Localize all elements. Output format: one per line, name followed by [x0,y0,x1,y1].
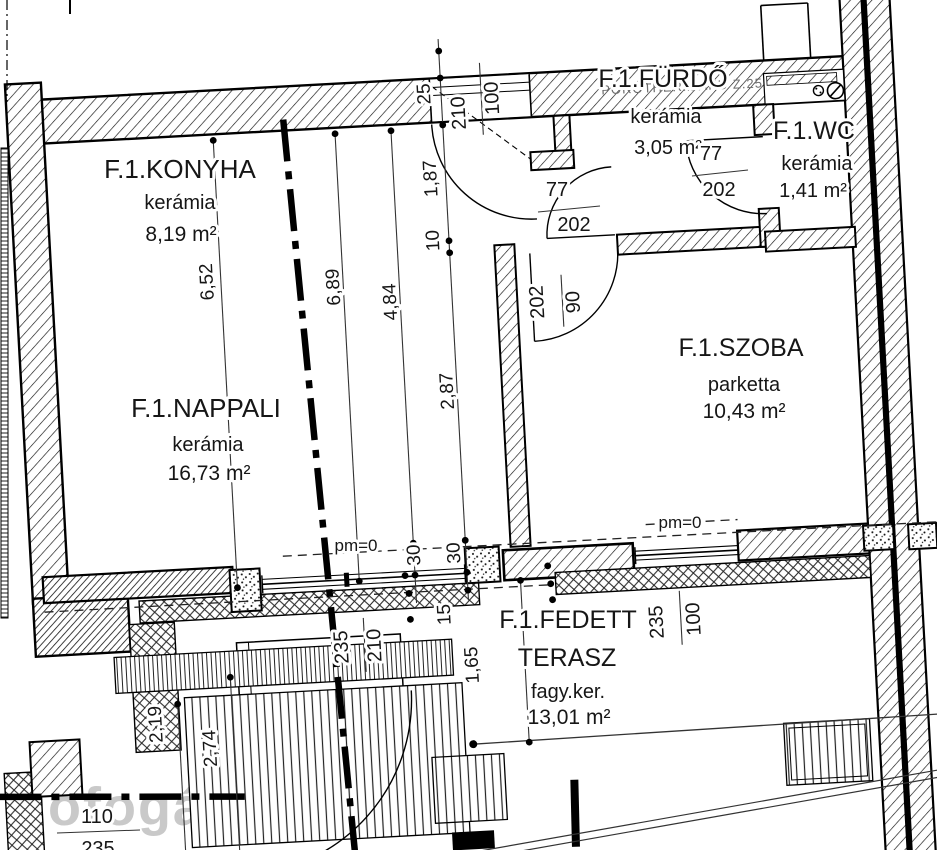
szoba-door-height: 202 [526,285,550,320]
north-wall-step-lines [761,3,811,61]
nappali-window-b: 210 [363,628,387,663]
szoba-door-width: 90 [562,290,585,313]
entry-width: 100 [480,81,504,116]
wc-vent-niche [763,69,845,104]
wc-door-height: 202 [702,179,735,201]
wall-furdo-stub [530,150,574,170]
wall-wc-south [765,227,856,252]
terrace-door-height: 235 [81,838,114,850]
wall-szoba-south [737,524,869,561]
furdo-area: 3,05 m² [634,137,702,159]
furdo-name: F.1.FÜRDŐ [598,64,727,93]
nappali-window-a: 235 [330,630,354,665]
floorplan-page: Jófogás [0,0,937,850]
dim-6-52: 6,52 [196,263,219,301]
dim-2-87: 2,87 [436,372,459,410]
entry-height: 210 [447,96,471,131]
dim-6-89: 6,89 [322,268,345,306]
wc-door-width: 77 [700,143,722,165]
terasz-area: 13,01 m² [528,706,611,729]
szoba-window-b: 100 [682,602,706,637]
dim-1-87: 1,87 [420,160,443,198]
wall-west [5,83,69,604]
dim-2-19: 2,19 [145,705,168,743]
konyha-area: 8,19 m² [145,223,216,246]
dim-30a: 30 [403,544,425,566]
wc-name: F.1.WC [773,117,855,145]
dim-30b: 30 [443,542,465,564]
terasz-name-line2: TERASZ [518,644,617,672]
furdo-door-height: 202 [557,214,590,236]
level-mark-nappali: pm=0 [335,536,378,555]
dim-25: 25 [413,83,435,105]
wc-area: 1,41 m² [779,180,847,202]
wall-furdo-south [617,227,766,255]
dim-4-84: 4,84 [379,283,402,321]
section-bar [572,780,578,847]
terrace-door-width: 110 [81,806,113,828]
terasz-finish: fagy.ker. [531,681,605,703]
szoba-name: F.1.SZOBA [678,334,803,362]
terasz-name-line1: F.1.FEDETT [499,606,637,634]
konyha-name: F.1.KONYHA [104,154,256,184]
room-labels: F.1.KONYHA kerámia 8,19 m² F.1.NAPPALI k… [104,64,855,729]
wall-furdo-wc-top [753,104,775,135]
nappali-name: F.1.NAPPALI [131,393,281,423]
wc-finish: kerámia [781,153,853,175]
dim-2-74: 2,74 [199,729,222,767]
stairs [184,683,470,848]
szoba-finish: parketta [708,374,781,396]
nappali-area: 16,73 m² [168,462,251,485]
dim-15: 15 [434,603,456,625]
konyha-finish: kerámia [144,192,216,214]
nappali-finish: kerámia [172,434,244,456]
dim-10: 10 [422,229,444,251]
pillar-east-junction-b [908,523,937,549]
furdo-finish: kerámia [630,106,702,128]
grate-terrace-east [784,719,873,786]
grates-and-stairs [114,617,874,850]
furdo-door-width: 77 [546,179,568,201]
section-marker [452,830,495,850]
floorplan-drawing: 6,52 6,89 4,84 2,87 25 1,87 10 30 30 15 … [0,0,937,850]
pillar-terrace-mid [465,547,501,584]
szoba-window-a: 235 [645,605,669,640]
dim-1-65: 1,65 [461,646,484,684]
grate-terrace-mid [432,754,507,824]
szoba-area: 10,43 m² [703,400,786,423]
pillar-terrace-west [229,568,261,612]
pillar-east-junction-a [863,524,894,551]
level-mark-szoba: pm=0 [659,513,702,532]
